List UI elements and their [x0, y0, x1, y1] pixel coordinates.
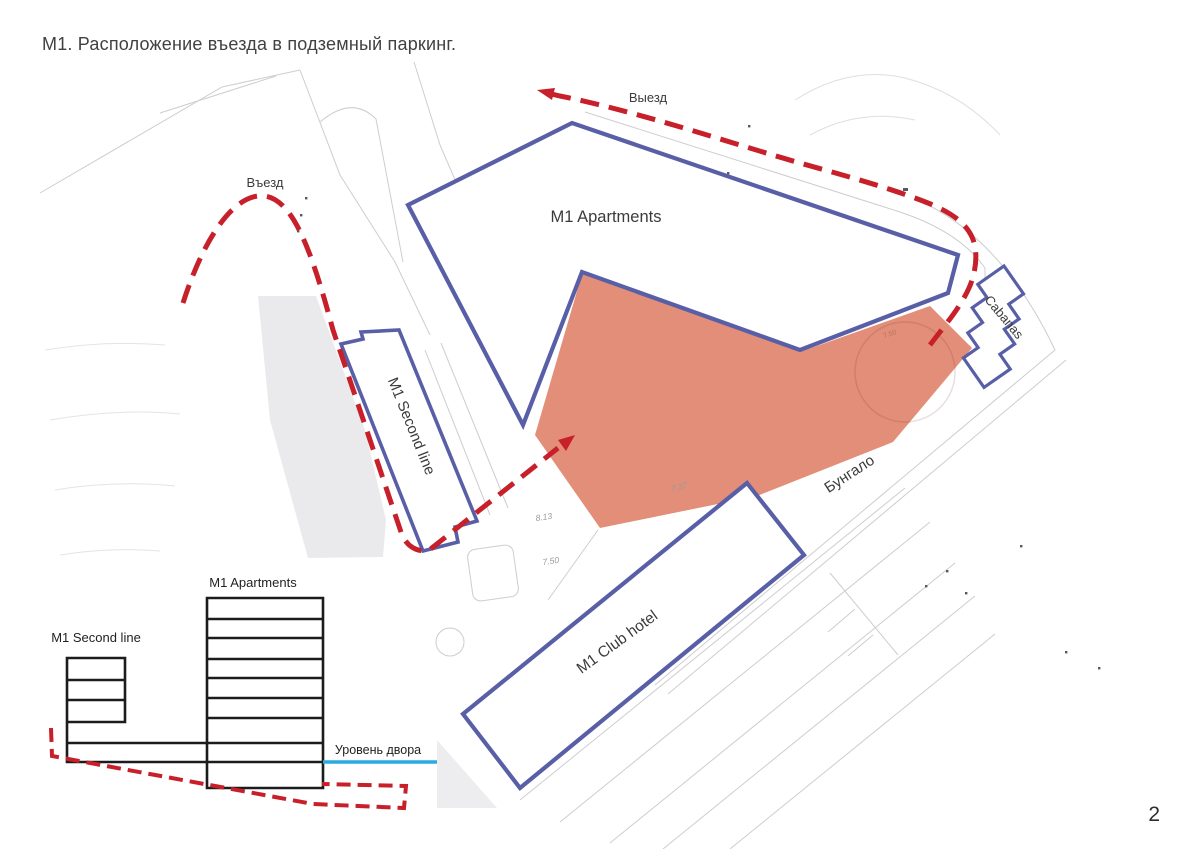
section-ramp-route: [51, 728, 406, 808]
exit-arrowhead-icon: [537, 88, 555, 100]
section-apartments-label: M1 Apartments: [209, 575, 297, 590]
section-second-line-label: M1 Second line: [51, 630, 141, 645]
elevation-mark-750: 7.50: [542, 555, 560, 567]
section-structure-lines: [67, 598, 323, 788]
exit-label: Выезд: [629, 90, 668, 105]
site-plan-svg: 7.50 Въезд Выезд M1 Apartments M1 Second…: [0, 0, 1200, 849]
entrance-label: Въезд: [246, 175, 283, 190]
yard-level-label: Уровень двора: [335, 743, 421, 757]
page-number: 2: [1148, 803, 1160, 827]
shore-triangle: [437, 740, 497, 808]
m1-apartments-label: M1 Apartments: [551, 208, 662, 226]
elevation-mark-813: 8.13: [535, 511, 553, 523]
